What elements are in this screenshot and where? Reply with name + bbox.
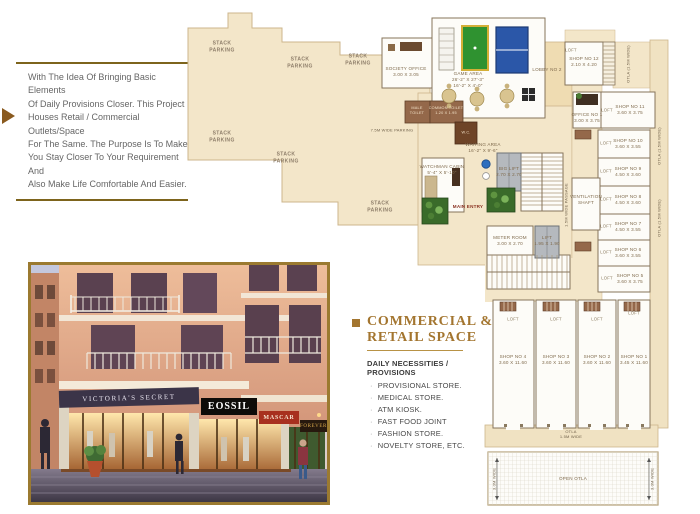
room-label-office-1: OFFICE NO 1 3.00 X 3.75 <box>571 112 602 124</box>
room-label-watchman-cabin: WATCHMAN CABIN 5'-4" X 5'-10" <box>420 164 465 176</box>
room-label-shop-1: SHOP NO 1 3.45 X 11.60 <box>620 354 648 366</box>
label-otla-bottom: OTLA 1.5M WIDE <box>560 429 582 439</box>
room-label-shop-9: SHOP NO 9 4.50 X 3.60 <box>615 166 642 178</box>
label-loft: LOFT <box>600 168 612 173</box>
room-label-big-lift: BIG LIFT 2.70 X 2.70 <box>496 166 522 178</box>
label-loft: LOFT <box>550 316 562 321</box>
label-loft: LOFT <box>628 310 640 315</box>
label-stack-parking: STACK PARKING <box>209 131 235 144</box>
label-loft: LOFT <box>601 275 613 280</box>
label-stack-parking: STACK PARKING <box>273 152 299 165</box>
room-label-shop-12: SHOP NO 12 2.10 X 4.20 <box>569 56 599 68</box>
label-stack-parking: STACK PARKING <box>345 54 371 67</box>
room-label-shop-5: SHOP NO 5 3.60 X 3.75 <box>617 273 644 285</box>
label-open-otla-dim: 3.0M WIDE <box>491 468 496 490</box>
room-label-waiting-area: WAITING AREA 16'-2" X 9'-6" <box>465 142 500 154</box>
room-label-wc: W.C. <box>461 131 470 136</box>
label-loft: LOFT <box>600 140 612 145</box>
label-loft: LOFT <box>591 316 603 321</box>
label-main-entry: MAIN ENTRY <box>453 204 483 210</box>
label-loft: LOFT <box>600 249 612 254</box>
label-loft: LOFT <box>600 196 612 201</box>
room-label-shop-11: SHOP NO 11 3.60 X 3.75 <box>615 104 644 116</box>
room-label-shop-4: SHOP NO 4 3.60 X 11.60 <box>499 354 527 366</box>
label-loft: LOFT <box>601 107 613 112</box>
room-label-shop-2: SHOP NO 2 3.60 X 11.60 <box>583 354 611 366</box>
label-stack-parking: STACK PARKING <box>367 201 393 214</box>
label-loft: LOFT <box>600 223 612 228</box>
room-label-shop-8: SHOP NO 8 4.50 X 3.60 <box>615 194 642 206</box>
label-loft: LOFT <box>565 47 577 52</box>
label-otla-vertical: OTLA (1.5M WIDE) <box>656 127 661 165</box>
room-label-lift: LIFT 1.95 X 1.90 <box>534 235 560 247</box>
floor-plan-drawing <box>0 0 700 514</box>
label-open-otla: OPEN OTLA <box>559 476 587 482</box>
room-label-shop-7: SHOP NO 7 4.50 X 3.55 <box>615 221 642 233</box>
room-label-common-toilet: COMMON TOILET 1.20 X 1.95 <box>429 106 464 116</box>
room-label-society-office: SOCIETY OFFICE 3.00 X 3.05 <box>385 66 426 78</box>
brochure-page: With The Idea Of Bringing Basic Elements… <box>0 0 700 514</box>
room-label-ventilation-shaft: VENTILATION SHAFT <box>570 194 602 206</box>
room-label-shop-6: SHOP NO 6 3.60 X 3.55 <box>615 247 642 259</box>
label-otla-vertical: OTLA (1.5M WIDE) <box>656 199 661 237</box>
room-label-meter-room: METER ROOM 3.00 X 2.70 <box>493 235 527 247</box>
room-label-lobby-2: LOBBY NO 2 <box>532 67 561 73</box>
label-parking-aisle: 7.5M WIDE PARKING <box>371 127 414 132</box>
label-stack-parking: STACK PARKING <box>209 41 235 54</box>
room-label-shop-10: SHOP NO 10 3.60 X 3.55 <box>613 138 643 150</box>
room-label-male-toilet: MALE TOILET <box>410 106 424 116</box>
label-loft: LOFT <box>507 316 519 321</box>
label-open-otla-dim: 3.0M WIDE <box>649 468 654 490</box>
label-otla-vertical: OTLA (1.5M WIDE) <box>625 45 630 83</box>
room-label-shop-3: SHOP NO 3 3.60 X 11.60 <box>542 354 570 366</box>
label-passage: 1.5M WIDE PASSAGE <box>563 183 568 227</box>
label-stack-parking: STACK PARKING <box>287 57 313 70</box>
room-label-game-area: GAME AREA 26'-2" X 27'-3" 16'-2" X 4'-0" <box>452 71 484 89</box>
